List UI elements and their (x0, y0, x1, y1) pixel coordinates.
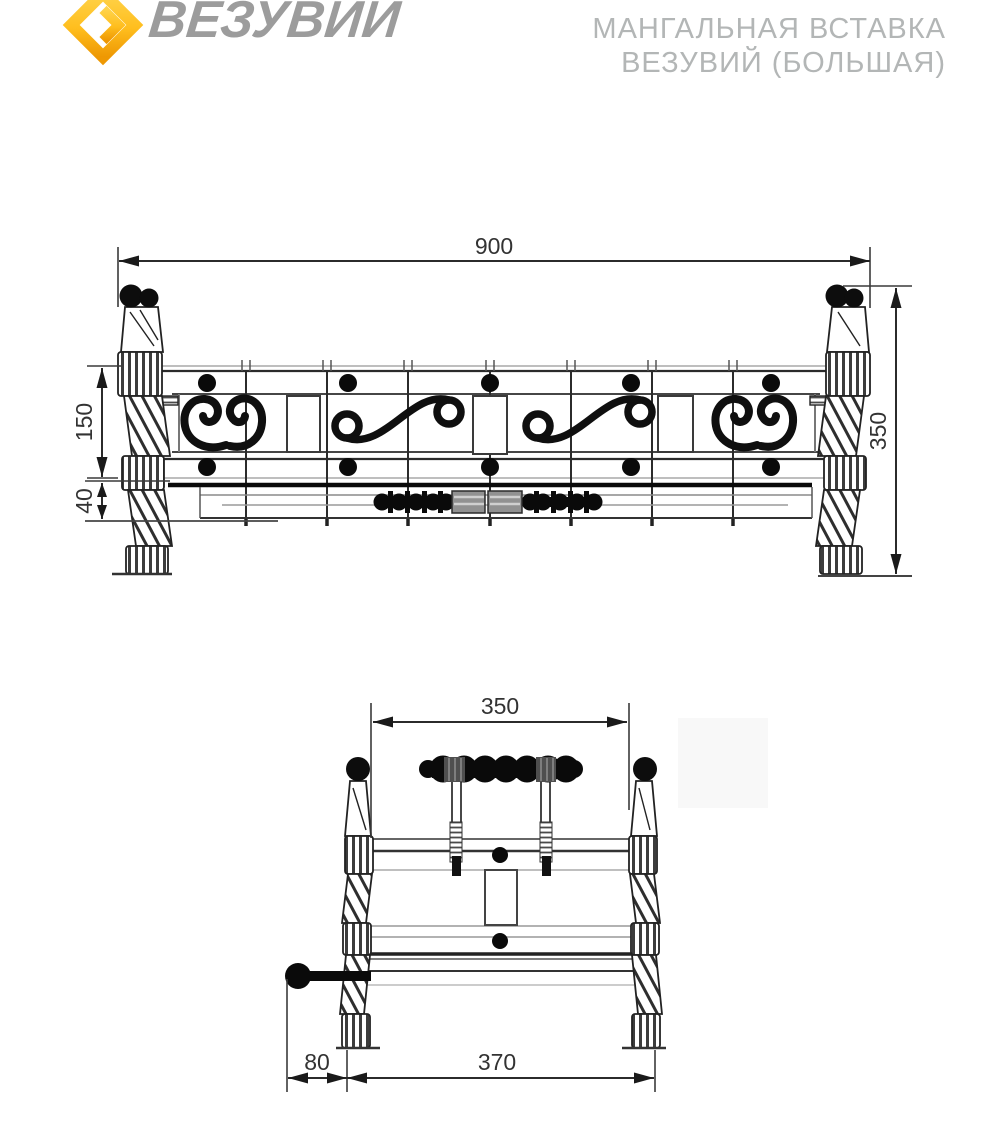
side-left-knob (346, 757, 370, 781)
front-left-knob (120, 285, 159, 308)
c-scroll (761, 398, 793, 446)
front-left-post (112, 285, 178, 575)
dim-label-370: 370 (478, 1049, 516, 1075)
dim-label-900: 900 (475, 233, 513, 259)
front-divider-feet (246, 518, 733, 526)
s-scroll (335, 399, 461, 440)
side-left-post (336, 757, 380, 1048)
beaded-handle-bar (419, 756, 583, 783)
page: ВЕЗУВИЙ МАНГАЛЬНАЯ ВСТАВКА ВЕЗУВИЙ (БОЛЬ… (0, 0, 1000, 1130)
side-view: 350 80 370 (285, 693, 768, 1092)
front-right-knob (826, 285, 864, 308)
side-right-knob (633, 757, 657, 781)
dim-label-80: 80 (304, 1049, 330, 1075)
dim-label-150: 150 (71, 403, 97, 441)
dimension-150: 150 (71, 366, 121, 478)
dim-label-40: 40 (71, 488, 97, 514)
dim-label-350-width: 350 (481, 693, 519, 719)
front-tray-handle (374, 491, 603, 513)
dim-label-350-height: 350 (865, 412, 891, 450)
c-scroll (184, 399, 226, 447)
s-scroll (526, 399, 652, 440)
c-scroll (715, 399, 757, 447)
watermark-square (678, 718, 768, 808)
dimension-80: 80 (287, 979, 347, 1092)
side-panel-plate (485, 870, 517, 925)
front-right-post (810, 285, 870, 575)
front-view: 900 150 40 (71, 233, 912, 576)
technical-drawing: 900 150 40 (0, 0, 1000, 1130)
dimension-370: 370 (347, 1049, 655, 1092)
dimension-900: 900 (118, 233, 870, 308)
